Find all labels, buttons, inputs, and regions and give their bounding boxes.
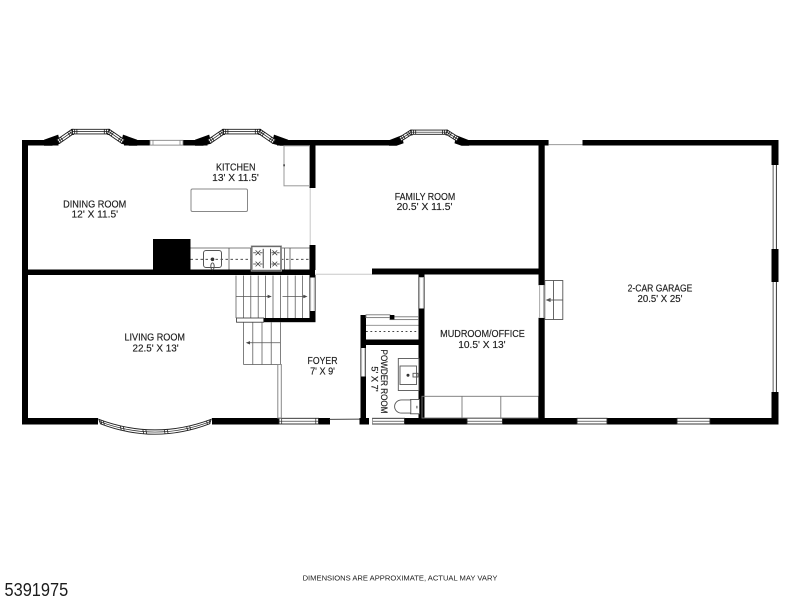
svg-text:5' X 7': 5' X 7' xyxy=(369,366,379,391)
svg-text:22.5' X 13': 22.5' X 13' xyxy=(133,343,179,354)
svg-text:MUDROOM/OFFICE: MUDROOM/OFFICE xyxy=(440,328,525,340)
svg-text:5391975: 5391975 xyxy=(5,579,69,600)
svg-text:7' X 9': 7' X 9' xyxy=(310,366,335,378)
svg-text:POWDER ROOM: POWDER ROOM xyxy=(379,350,390,414)
svg-text:10.5' X 13': 10.5' X 13' xyxy=(458,340,505,351)
svg-text:LIVING ROOM: LIVING ROOM xyxy=(124,332,184,344)
svg-text:13' X 11.5': 13' X 11.5' xyxy=(212,173,259,184)
svg-text:12' X 11.5': 12' X 11.5' xyxy=(72,210,119,221)
svg-text:DIMENSIONS ARE APPROXIMATE, AC: DIMENSIONS ARE APPROXIMATE, ACTUAL MAY V… xyxy=(303,574,498,583)
svg-text:20.5' X 25': 20.5' X 25' xyxy=(638,294,683,305)
svg-text:20.5' X 11.5': 20.5' X 11.5' xyxy=(397,202,453,213)
